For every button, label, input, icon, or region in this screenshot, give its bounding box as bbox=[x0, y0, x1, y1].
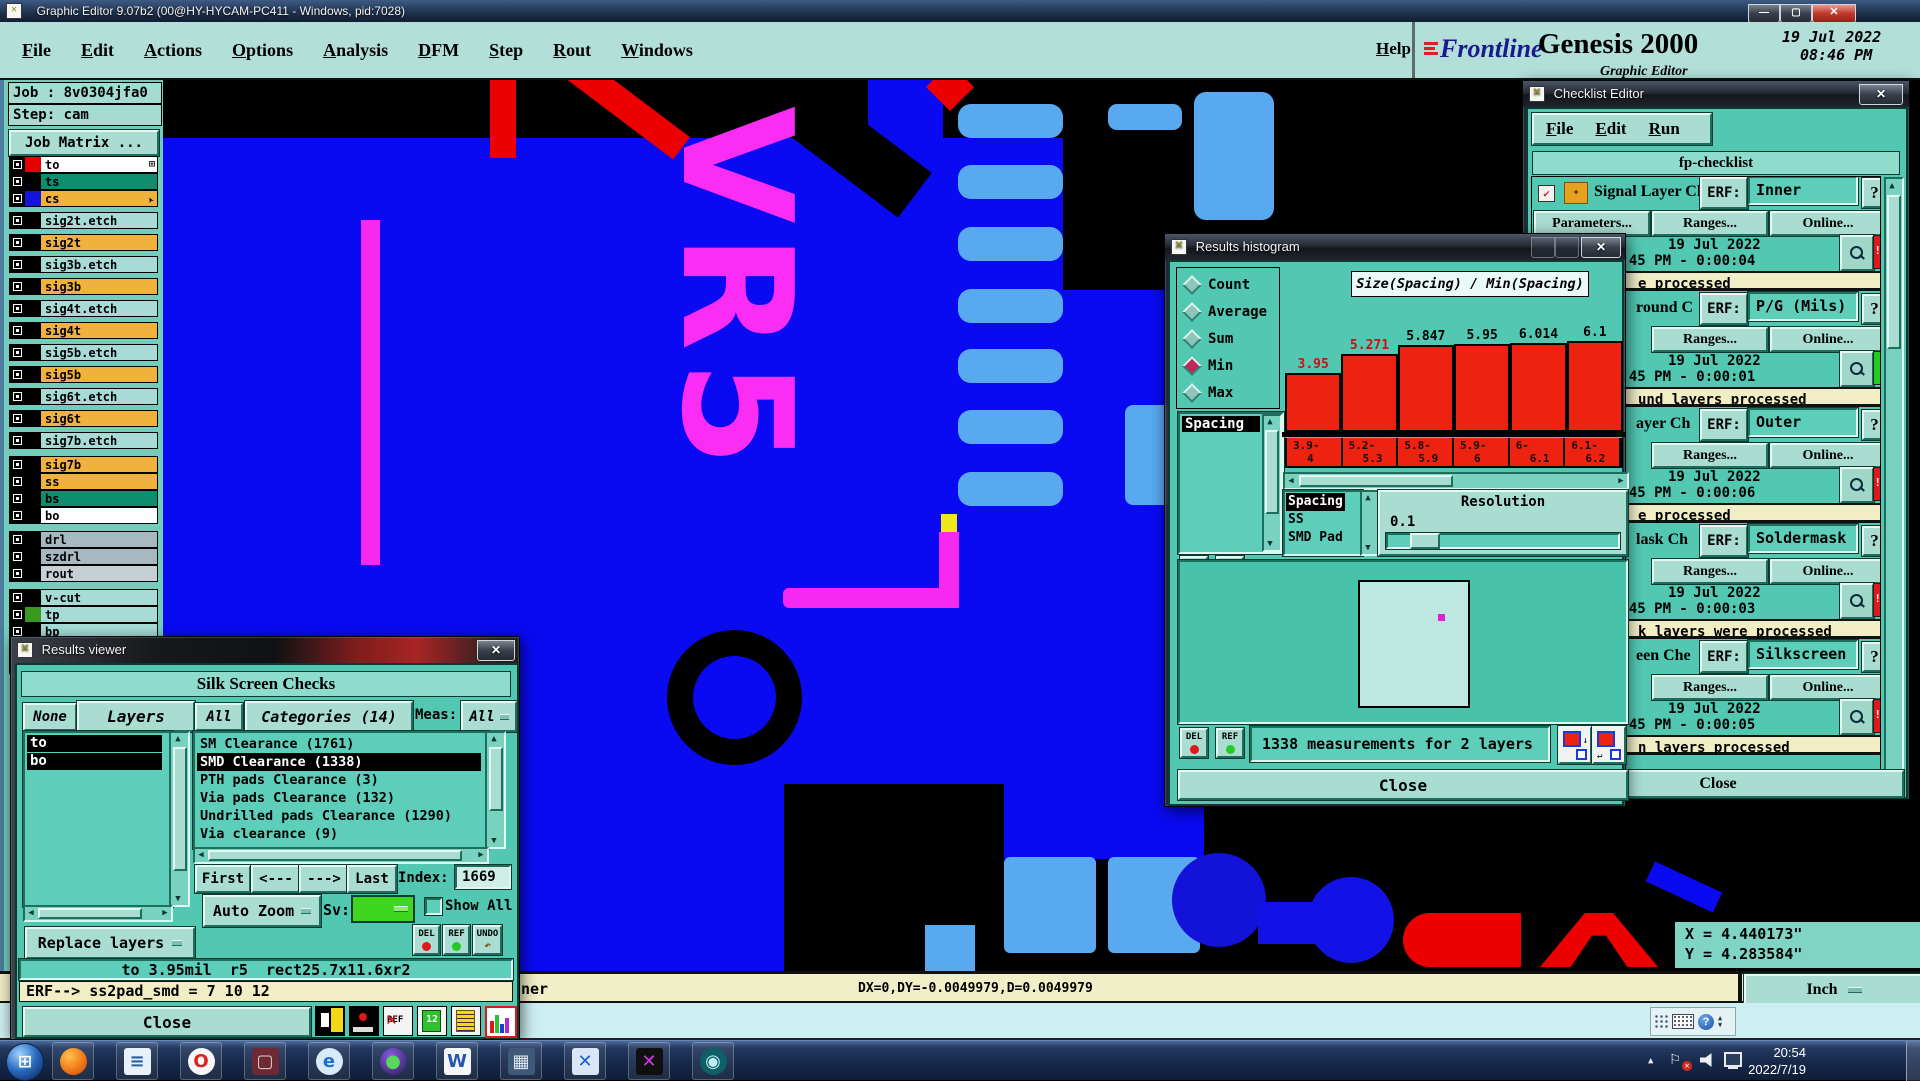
clock-time: 20:54 bbox=[1742, 1044, 1806, 1061]
layer-row[interactable]: sig4t bbox=[9, 322, 158, 339]
layer-visibility-checkbox[interactable] bbox=[10, 433, 25, 448]
erf-value: P/G (Mils) bbox=[1756, 297, 1846, 315]
erf-value: Inner bbox=[1756, 181, 1801, 199]
histogram-bin-label: 5.8-5.9 bbox=[1398, 438, 1454, 466]
histogram-bar: 5.271 bbox=[1341, 338, 1397, 432]
export-histogram-button[interactable]: ↓ bbox=[1558, 726, 1592, 764]
severity-dropdown[interactable] bbox=[351, 895, 415, 923]
board-preview[interactable] bbox=[1178, 560, 1628, 724]
categories-header[interactable]: Categories (14) bbox=[245, 701, 413, 732]
red-dot-icon bbox=[422, 942, 431, 951]
taskbar-app-icon[interactable]: O bbox=[180, 1042, 222, 1080]
section-label: een Che bbox=[1636, 647, 1691, 665]
layer-visibility-checkbox[interactable] bbox=[10, 279, 25, 294]
first-button[interactable]: First bbox=[195, 865, 251, 893]
auto-zoom-dropdown[interactable]: Auto Zoom bbox=[203, 895, 321, 927]
layer-visibility-checkbox[interactable] bbox=[10, 174, 25, 189]
layer-row[interactable]: bs bbox=[9, 490, 158, 507]
menu-item[interactable]: DFM bbox=[418, 40, 459, 61]
layer-color-swatch[interactable] bbox=[25, 257, 41, 272]
layer-trail-icon: ➤ bbox=[144, 192, 157, 204]
sv-label: Sv: bbox=[323, 901, 350, 919]
layer-color-swatch[interactable] bbox=[25, 191, 41, 206]
viewer-layer-hscrollbar[interactable]: ◀ ▶ bbox=[23, 905, 173, 922]
clock[interactable]: 20:54 2022/7/19 bbox=[1742, 1044, 1806, 1078]
magenta-trace bbox=[783, 588, 959, 608]
grid-dots-icon[interactable] bbox=[1654, 1014, 1668, 1030]
scroll-down-icon[interactable]: ▼ bbox=[172, 893, 184, 905]
checklist-titlebar[interactable]: ✕ Checklist Editor ✕ bbox=[1523, 81, 1909, 107]
maximize-button[interactable]: ▢ bbox=[1780, 4, 1812, 23]
layer-row[interactable]: sig7b.etch bbox=[9, 432, 158, 449]
checklist-title: Checklist Editor bbox=[1554, 86, 1644, 101]
layer-color-swatch[interactable] bbox=[25, 433, 41, 448]
taskbar-app-icon[interactable]: W bbox=[436, 1042, 478, 1080]
category-item[interactable]: SMD Clearance (1338) bbox=[197, 753, 481, 771]
report-icon[interactable] bbox=[451, 1006, 481, 1036]
taskbar-app-icon[interactable]: ✕ bbox=[564, 1042, 606, 1080]
magnifier-icon bbox=[1849, 709, 1865, 725]
category-item[interactable]: Undrilled pads Clearance (1290) bbox=[197, 807, 481, 825]
prev-button[interactable]: <--- bbox=[251, 865, 301, 893]
ref-button[interactable]: REF bbox=[1216, 728, 1244, 758]
layer-row[interactable]: sig3b bbox=[9, 278, 158, 295]
layer-row[interactable]: rout bbox=[9, 565, 158, 582]
scroll-up-icon[interactable]: ▲ bbox=[1886, 180, 1898, 192]
online-button[interactable]: Online... bbox=[1770, 559, 1880, 584]
checklist-close-icon[interactable]: ✕ bbox=[1859, 84, 1903, 105]
series-items: Spacing bbox=[1182, 416, 1260, 432]
layer-name: ss bbox=[45, 475, 59, 489]
layer-visibility-checkbox[interactable] bbox=[10, 367, 25, 382]
measure-type-item[interactable]: SS bbox=[1286, 511, 1345, 529]
measure-type-scrollbar[interactable]: ▲ ▼ bbox=[1360, 490, 1379, 556]
measure-type-item[interactable]: SMD Pad bbox=[1286, 529, 1345, 547]
ranges-button[interactable]: Ranges... bbox=[1652, 327, 1768, 352]
layer-visibility-checkbox[interactable] bbox=[10, 491, 25, 506]
scroll-right-icon[interactable]: ▶ bbox=[159, 907, 171, 919]
layer-row[interactable]: sig5b bbox=[9, 366, 158, 383]
layer-row[interactable]: bo bbox=[9, 507, 158, 524]
resolution-panel: Resolution 0.1 bbox=[1378, 490, 1628, 556]
chart-hscrollbar[interactable]: ◀ ▶ bbox=[1283, 472, 1629, 490]
run-time: 8:45 PM - 0:00:04 bbox=[1612, 253, 1755, 269]
clear-reference-icon[interactable]: REF ✕ bbox=[383, 1006, 413, 1036]
layer-color-swatch[interactable] bbox=[25, 345, 41, 360]
action-center-flag-icon[interactable]: ⚐ bbox=[1670, 1049, 1680, 1069]
category-item[interactable]: Via clearance (9) bbox=[197, 825, 481, 843]
ranges-button[interactable]: Ranges... bbox=[1652, 559, 1768, 584]
erf-field[interactable]: Silkscreen bbox=[1748, 640, 1858, 669]
scroll-up-icon[interactable]: ▲ bbox=[488, 733, 500, 745]
filter-none-button[interactable]: None bbox=[23, 703, 77, 731]
layer-color-swatch[interactable] bbox=[25, 279, 41, 294]
stat-radio[interactable]: Average bbox=[1177, 298, 1279, 325]
scroll-right-icon[interactable]: ▶ bbox=[1615, 475, 1627, 487]
online-button[interactable]: Online... bbox=[1770, 675, 1880, 700]
erf-button[interactable]: ERF: bbox=[1700, 641, 1748, 673]
sequence-pages-icon[interactable]: 12 bbox=[417, 1006, 447, 1036]
blue-square-icon bbox=[1576, 749, 1587, 760]
blue-via bbox=[1308, 877, 1394, 963]
layer-color-swatch[interactable] bbox=[25, 474, 41, 489]
layer-visibility-checkbox[interactable] bbox=[10, 235, 25, 250]
arrow-return-icon: ↵ bbox=[1597, 751, 1602, 761]
section-help-button[interactable]: ? bbox=[1862, 294, 1880, 324]
spinner-down-icon[interactable]: ▼ bbox=[1718, 1022, 1722, 1029]
index-field[interactable]: 1669 bbox=[455, 865, 511, 889]
layer-name: sig3b.etch bbox=[45, 258, 117, 272]
next-button[interactable]: ---> bbox=[299, 865, 349, 893]
online-button[interactable]: Online... bbox=[1770, 211, 1880, 236]
checklist-menu-edit[interactable]: Edit bbox=[1595, 119, 1626, 139]
menu-item[interactable]: Windows bbox=[621, 40, 693, 61]
minimize-button[interactable]: — bbox=[1748, 4, 1780, 23]
menu-item[interactable]: Options bbox=[232, 40, 293, 61]
layer-visibility-checkbox[interactable] bbox=[10, 532, 25, 547]
layer-row[interactable]: sig2t bbox=[9, 234, 158, 251]
layer-color-swatch[interactable] bbox=[25, 532, 41, 547]
layer-row[interactable]: v-cut bbox=[9, 589, 158, 606]
layer-list: to ⊞ ts cs ➤ bbox=[9, 156, 158, 674]
layer-row[interactable]: tp bbox=[9, 606, 158, 623]
layer-row[interactable]: to ⊞ bbox=[9, 156, 158, 173]
checklist-menu-run[interactable]: Run bbox=[1649, 119, 1680, 139]
del-button[interactable]: DEL bbox=[413, 925, 440, 955]
taskbar-app-icon[interactable]: e bbox=[308, 1042, 350, 1080]
scroll-up-icon[interactable]: ▲ bbox=[172, 733, 184, 745]
stat-radio-label: Sum bbox=[1208, 331, 1233, 347]
layer-name: bo bbox=[45, 509, 59, 523]
layer-color-swatch[interactable] bbox=[25, 367, 41, 382]
layer-visibility-checkbox[interactable] bbox=[10, 508, 25, 523]
layer-color-swatch[interactable] bbox=[25, 323, 41, 338]
erf-field[interactable]: Soldermask bbox=[1748, 524, 1858, 553]
units-value: Inch bbox=[1806, 981, 1837, 999]
auto-zoom-value: Auto Zoom bbox=[213, 902, 294, 920]
checklist-scrollbar[interactable]: ▲ ▼ bbox=[1884, 177, 1904, 799]
erf-value: Silkscreen bbox=[1756, 645, 1846, 663]
checklist-menu-file[interactable]: File bbox=[1546, 119, 1573, 139]
close-button[interactable]: ✕ bbox=[1812, 4, 1856, 23]
layer-color-swatch[interactable] bbox=[25, 235, 41, 250]
alert-icon: !! bbox=[1874, 244, 1880, 257]
stat-radio[interactable]: Count bbox=[1177, 271, 1279, 298]
run-date: 19 Jul 2022 bbox=[1668, 469, 1761, 485]
stat-radio[interactable]: Sum bbox=[1177, 325, 1279, 352]
replace-layers-dropdown[interactable]: Replace layers bbox=[25, 927, 195, 959]
category-item[interactable]: Via pads Clearance (132) bbox=[197, 789, 481, 807]
layer-visibility-checkbox[interactable] bbox=[10, 157, 25, 172]
layer-visibility-checkbox[interactable] bbox=[10, 411, 25, 426]
scroll-down-icon[interactable]: ▼ bbox=[488, 835, 500, 847]
ranges-button[interactable]: Ranges... bbox=[1652, 675, 1768, 700]
histogram-window-icon: ✕ bbox=[1171, 239, 1187, 255]
viewer-title: Results viewer bbox=[42, 642, 127, 657]
layer-row[interactable]: sig4t.etch bbox=[9, 300, 158, 317]
histogram-maximize-icon[interactable] bbox=[1555, 237, 1579, 258]
layer-color-swatch[interactable] bbox=[25, 549, 41, 564]
zoom-result-button[interactable] bbox=[1840, 467, 1874, 503]
layer-row[interactable]: szdrl bbox=[9, 548, 158, 565]
section-help-button[interactable]: ? bbox=[1862, 410, 1880, 440]
layer-color-swatch[interactable] bbox=[25, 411, 41, 426]
viewer-layer-item[interactable]: bo bbox=[27, 753, 162, 770]
stat-radio-label: Max bbox=[1208, 385, 1233, 401]
taskbar-app-icon[interactable]: ▦ bbox=[500, 1042, 542, 1080]
layer-visibility-checkbox[interactable] bbox=[10, 345, 25, 360]
erf-button[interactable]: ERF: bbox=[1700, 525, 1748, 557]
delta-readout: DX=0,DY=-0.0049979,D=0.0049979 bbox=[858, 981, 1093, 996]
viewer-close-button[interactable]: Close bbox=[23, 1007, 311, 1037]
menu-items: File Edit Actions Options Analysis DFM S… bbox=[22, 22, 693, 78]
layer-visibility-checkbox[interactable] bbox=[10, 457, 25, 472]
scrollbar-thumb[interactable] bbox=[38, 908, 142, 919]
layer-visibility-checkbox[interactable] bbox=[10, 474, 25, 489]
silkscreen-text-vr5: VR5 bbox=[661, 106, 811, 476]
viewer-layer-listbox: to bo bbox=[23, 731, 173, 907]
viewer-close-icon[interactable]: ✕ bbox=[477, 640, 515, 661]
layer-row[interactable]: ts bbox=[9, 173, 158, 190]
keyboard-icon[interactable] bbox=[1672, 1014, 1694, 1029]
layer-color-swatch[interactable] bbox=[25, 590, 41, 605]
scroll-up-icon[interactable]: ▲ bbox=[1362, 492, 1374, 504]
brand-time: 08:46 PM bbox=[1800, 46, 1872, 64]
brand-date: 19 Jul 2022 bbox=[1782, 28, 1881, 46]
meas-dropdown[interactable]: All bbox=[461, 701, 517, 732]
cyan-pad bbox=[958, 349, 1063, 383]
histogram-close-button[interactable]: Close bbox=[1178, 770, 1628, 800]
layer-name: sig4t bbox=[45, 324, 81, 338]
mode-fragment: ner bbox=[521, 980, 548, 998]
scrollbar-thumb[interactable] bbox=[1265, 430, 1279, 514]
section-help-button[interactable]: ? bbox=[1862, 178, 1880, 208]
histogram-bar: 5.847 bbox=[1398, 329, 1454, 432]
cyan-pad bbox=[958, 104, 1063, 138]
category-item[interactable]: SM Clearance (1761) bbox=[197, 735, 481, 753]
taskbar-app-icon[interactable]: ≡ bbox=[116, 1042, 158, 1080]
marker-icon[interactable] bbox=[349, 1006, 379, 1036]
layer-visibility-checkbox[interactable] bbox=[10, 213, 25, 228]
menu-help[interactable]: Help bbox=[1376, 39, 1411, 59]
menu-item[interactable]: File bbox=[22, 40, 51, 61]
taskbar-app-icon[interactable]: ▢ bbox=[244, 1042, 286, 1080]
help-icon[interactable]: ? bbox=[1698, 1014, 1714, 1030]
layer-color-swatch[interactable] bbox=[25, 301, 41, 316]
layer-color-swatch[interactable] bbox=[25, 508, 41, 523]
scroll-up-icon[interactable]: ▲ bbox=[1264, 416, 1276, 428]
layer-visibility-checkbox[interactable] bbox=[10, 566, 25, 581]
layer-row[interactable]: sig6t.etch bbox=[9, 388, 158, 405]
histogram-titlebar[interactable]: ✕ Results histogram ✕ bbox=[1165, 234, 1625, 260]
menu-item[interactable]: Step bbox=[489, 40, 523, 61]
layer-row[interactable]: sig2t.etch bbox=[9, 212, 158, 229]
ranges-button[interactable]: Ranges... bbox=[1652, 443, 1768, 468]
layer-color-swatch[interactable] bbox=[25, 174, 41, 189]
layer-row[interactable]: drl bbox=[9, 531, 158, 548]
drill-ring bbox=[667, 630, 802, 765]
undo-label: UNDO bbox=[477, 929, 499, 939]
ranges-button[interactable]: Ranges... bbox=[1652, 211, 1768, 236]
scroll-down-icon[interactable]: ▼ bbox=[1362, 542, 1374, 554]
zoom-result-button[interactable] bbox=[1840, 583, 1874, 619]
stat-radio[interactable]: Min bbox=[1177, 352, 1279, 379]
layer-visibility-checkbox[interactable] bbox=[10, 590, 25, 605]
layer-row[interactable]: sig3b.etch bbox=[9, 256, 158, 273]
measure-type-item[interactable]: Spacing bbox=[1286, 493, 1345, 511]
category-item[interactable]: PTH pads Clearance (3) bbox=[197, 771, 481, 789]
volume-icon[interactable] bbox=[1700, 1053, 1716, 1067]
layer-visibility-checkbox[interactable] bbox=[10, 549, 25, 564]
histogram-minimize-icon[interactable] bbox=[1531, 237, 1555, 258]
run-time: 8:45 PM - 0:00:05 bbox=[1612, 717, 1755, 733]
last-button[interactable]: Last bbox=[347, 865, 397, 893]
undo-button[interactable]: UNDO ↶ bbox=[473, 925, 502, 955]
erf-button[interactable]: ERF: bbox=[1700, 177, 1748, 209]
series-scrollbar[interactable]: ▲ ▼ bbox=[1262, 414, 1282, 552]
layer-visibility-checkbox[interactable] bbox=[10, 323, 25, 338]
menu-item[interactable]: Analysis bbox=[323, 40, 388, 61]
taskbar-app-icon[interactable]: ✕ bbox=[628, 1042, 670, 1080]
erf-field[interactable]: P/G (Mils) bbox=[1748, 292, 1858, 321]
show-all-label: Show All bbox=[445, 898, 512, 914]
network-icon[interactable] bbox=[1724, 1052, 1742, 1067]
measure-type-listbox: Spacing SS SMD Pad bbox=[1283, 490, 1363, 556]
online-button[interactable]: Online... bbox=[1770, 443, 1880, 468]
import-histogram-button[interactable]: ↵ bbox=[1592, 726, 1626, 764]
section-help-button[interactable]: ? bbox=[1862, 642, 1880, 672]
show-all-checkbox[interactable] bbox=[425, 898, 442, 915]
status-indicator: !! bbox=[1873, 583, 1880, 617]
layer-color-swatch[interactable] bbox=[25, 566, 41, 581]
tray-expand-icon[interactable]: ▲ bbox=[1648, 1056, 1653, 1066]
layer-name: sig5b.etch bbox=[45, 346, 117, 360]
histogram-close-icon[interactable]: ✕ bbox=[1581, 237, 1621, 258]
scroll-left-icon[interactable]: ◀ bbox=[195, 849, 207, 861]
menu-item[interactable]: Edit bbox=[81, 40, 114, 61]
layer-color-swatch[interactable] bbox=[25, 607, 41, 622]
scrollbar-thumb[interactable] bbox=[208, 850, 462, 861]
status-indicator: !! bbox=[1873, 235, 1880, 269]
layer-visibility-checkbox[interactable] bbox=[10, 301, 25, 316]
histogram-tool-icon[interactable] bbox=[485, 1006, 517, 1038]
run-date: 19 Jul 2022 bbox=[1668, 237, 1761, 253]
start-button[interactable]: ⊞ bbox=[6, 1043, 44, 1081]
layer-visibility-checkbox[interactable] bbox=[10, 191, 25, 206]
exit-panel-icon[interactable] bbox=[315, 1006, 345, 1036]
red-trace bbox=[490, 80, 516, 158]
layer-color-swatch[interactable] bbox=[25, 389, 41, 404]
section-type-icon: ✦ bbox=[1564, 182, 1588, 204]
zoom-result-button[interactable] bbox=[1840, 235, 1874, 271]
layer-visibility-checkbox[interactable] bbox=[10, 257, 25, 272]
clock-date: 2022/7/19 bbox=[1742, 1061, 1806, 1078]
layer-color-swatch[interactable] bbox=[25, 457, 41, 472]
layer-name: v-cut bbox=[45, 591, 81, 605]
layer-visibility-checkbox[interactable] bbox=[10, 389, 25, 404]
layer-color-swatch[interactable] bbox=[25, 491, 41, 506]
scroll-left-icon[interactable]: ◀ bbox=[25, 907, 37, 919]
run-date: 19 Jul 2022 bbox=[1668, 701, 1761, 717]
scrollbar-thumb[interactable] bbox=[173, 747, 187, 871]
zoom-result-button[interactable] bbox=[1840, 351, 1874, 387]
menu-item[interactable]: Actions bbox=[144, 40, 202, 61]
scrollbar-thumb[interactable] bbox=[1887, 195, 1901, 349]
layer-name: szdrl bbox=[45, 550, 81, 564]
stat-radio[interactable]: Max bbox=[1177, 379, 1279, 406]
histogram-xband: 3.9-45.2-5.35.8-5.95.9-66-6.16.1-6.2 bbox=[1285, 438, 1623, 468]
cyan-pad bbox=[1108, 104, 1182, 130]
viewer-layer-scrollbar[interactable]: ▲ ▼ bbox=[169, 731, 190, 907]
units-dropdown[interactable]: Inch bbox=[1744, 974, 1920, 1005]
erf-field[interactable]: Inner bbox=[1748, 177, 1858, 205]
layer-visibility-checkbox[interactable] bbox=[10, 607, 25, 622]
show-desktop-button[interactable] bbox=[1906, 1041, 1920, 1081]
layer-color-swatch[interactable] bbox=[25, 213, 41, 228]
erf-button[interactable]: ERF: bbox=[1700, 293, 1748, 325]
filter-all-button[interactable]: All bbox=[195, 703, 243, 731]
layer-name: to bbox=[45, 158, 59, 172]
mini-histogram-icon bbox=[1563, 731, 1581, 747]
taskbar: ⊞ ≡ O ▢ e ● bbox=[0, 1040, 1920, 1080]
scroll-right-icon[interactable]: ▶ bbox=[475, 849, 487, 861]
layer-row[interactable]: ss bbox=[9, 473, 158, 490]
menu-item[interactable]: Rout bbox=[553, 40, 591, 61]
section-help-button[interactable]: ? bbox=[1862, 526, 1880, 556]
scrollbar-thumb[interactable] bbox=[1299, 475, 1453, 487]
undo-icon: ↶ bbox=[475, 940, 500, 951]
erf-value: Soldermask bbox=[1756, 529, 1846, 547]
results-histogram-window: ✕ Results histogram ✕ Count Average bbox=[1164, 233, 1626, 807]
category-scrollbar[interactable]: ▲ ▼ bbox=[485, 731, 506, 849]
status-divider bbox=[1738, 974, 1742, 1001]
layer-color-swatch[interactable] bbox=[25, 157, 41, 172]
taskbar-app-icon[interactable]: ◉ bbox=[692, 1042, 734, 1080]
series-item[interactable]: Spacing bbox=[1182, 416, 1260, 432]
category-hscrollbar[interactable]: ◀ ▶ bbox=[193, 847, 489, 864]
ref-button[interactable]: REF bbox=[443, 925, 470, 955]
histogram-bin-label: 6-6.1 bbox=[1510, 438, 1566, 466]
layer-row[interactable]: sig7b bbox=[9, 456, 158, 473]
zoom-result-button[interactable] bbox=[1840, 699, 1874, 735]
section-checkbox[interactable]: ✔ bbox=[1538, 185, 1555, 202]
scroll-left-icon[interactable]: ◀ bbox=[1285, 475, 1297, 487]
filter-layers-button[interactable]: Layers bbox=[77, 701, 195, 732]
layer-name: drl bbox=[45, 533, 67, 547]
taskbar-app-icon[interactable] bbox=[52, 1042, 94, 1080]
scrollbar-thumb[interactable] bbox=[489, 747, 503, 811]
online-button[interactable]: Online... bbox=[1770, 327, 1880, 352]
erf-button[interactable]: ERF: bbox=[1700, 409, 1748, 441]
erf-field[interactable]: Outer bbox=[1748, 408, 1858, 437]
del-button[interactable]: DEL bbox=[1180, 728, 1208, 758]
viewer-layer-item[interactable]: to bbox=[27, 735, 162, 752]
layer-row[interactable]: sig6t bbox=[9, 410, 158, 427]
slider-thumb[interactable] bbox=[1410, 533, 1440, 549]
chart-baseline bbox=[1282, 432, 1626, 437]
step-label: Step: cam bbox=[9, 105, 161, 125]
layer-row[interactable]: cs ➤ bbox=[9, 190, 158, 207]
layer-row[interactable]: sig5b.etch bbox=[9, 344, 158, 361]
viewer-titlebar[interactable]: ✕ Results viewer ✕ bbox=[11, 637, 519, 663]
taskbar-app-icon[interactable]: ● bbox=[372, 1042, 414, 1080]
scroll-down-icon[interactable]: ▼ bbox=[1264, 538, 1276, 550]
layer-name: rout bbox=[45, 567, 74, 581]
resolution-slider[interactable] bbox=[1386, 533, 1620, 549]
arrow-down-icon: ↓ bbox=[1583, 736, 1588, 746]
job-matrix-button[interactable]: Job Matrix ... bbox=[9, 130, 159, 156]
replace-layers-value: Replace layers bbox=[38, 934, 164, 952]
